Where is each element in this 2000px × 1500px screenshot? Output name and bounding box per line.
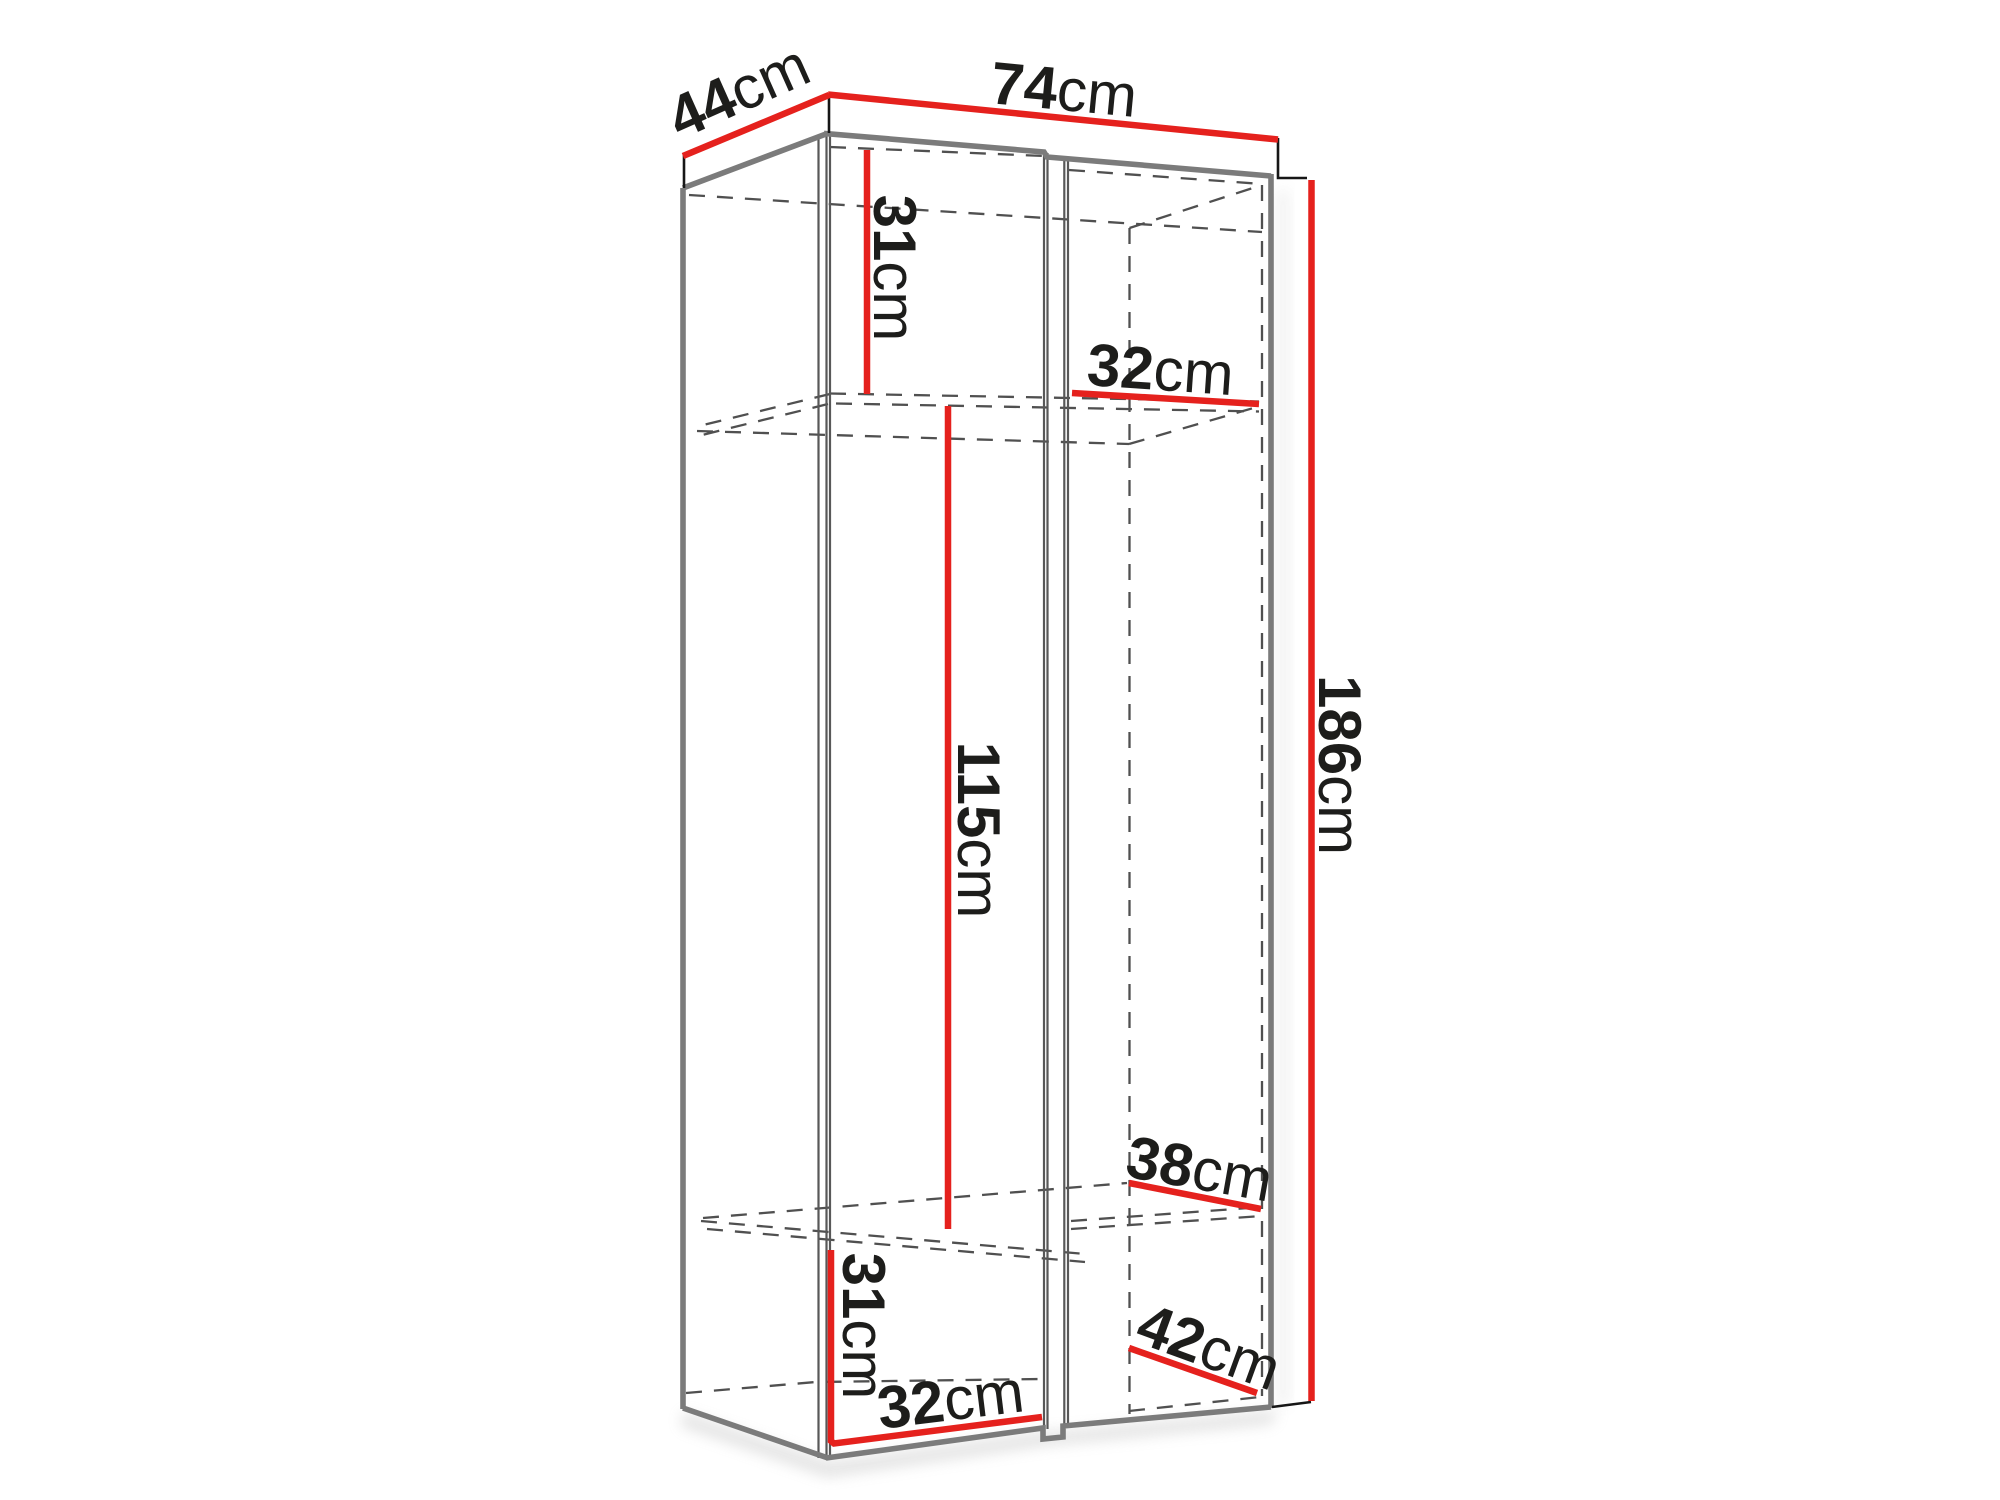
svg-text:42cm: 42cm — [1129, 1290, 1290, 1403]
svg-text:186cm: 186cm — [1306, 675, 1373, 855]
svg-text:38cm: 38cm — [1121, 1123, 1277, 1214]
svg-text:31cm: 31cm — [861, 195, 928, 342]
svg-text:74cm: 74cm — [988, 49, 1140, 130]
svg-text:32cm: 32cm — [1085, 331, 1236, 408]
svg-text:115cm: 115cm — [945, 742, 1012, 919]
